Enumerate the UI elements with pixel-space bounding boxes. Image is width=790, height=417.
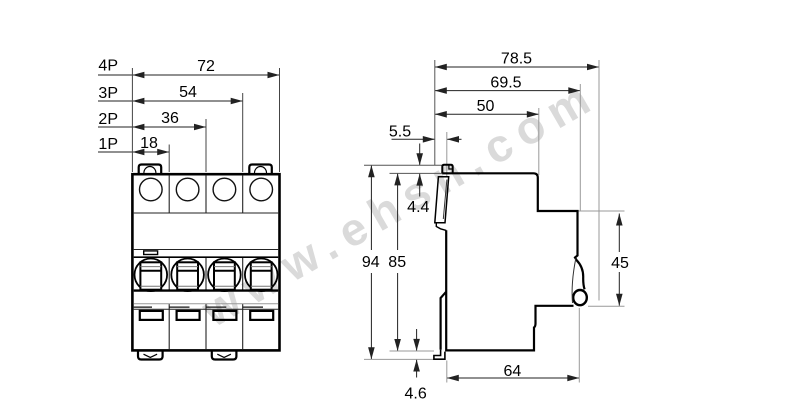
svg-text:54: 54: [179, 84, 197, 101]
svg-text:2P: 2P: [98, 111, 118, 128]
svg-text:94: 94: [362, 254, 380, 271]
svg-text:72: 72: [197, 58, 215, 75]
svg-text:5.5: 5.5: [389, 124, 411, 141]
svg-text:4P: 4P: [98, 58, 118, 75]
svg-text:www.ehsn.com: www.ehsn.com: [192, 68, 606, 337]
svg-text:4.6: 4.6: [404, 386, 426, 403]
svg-text:3P: 3P: [98, 85, 118, 102]
svg-text:50: 50: [477, 98, 495, 115]
svg-text:69.5: 69.5: [490, 75, 521, 92]
svg-text:85: 85: [388, 254, 406, 271]
svg-text:18: 18: [140, 135, 158, 152]
svg-text:45: 45: [611, 255, 629, 272]
svg-text:78.5: 78.5: [501, 51, 532, 68]
svg-text:36: 36: [161, 110, 179, 127]
svg-text:64: 64: [504, 363, 522, 380]
svg-text:4.4: 4.4: [407, 199, 429, 216]
svg-text:1P: 1P: [98, 136, 118, 153]
